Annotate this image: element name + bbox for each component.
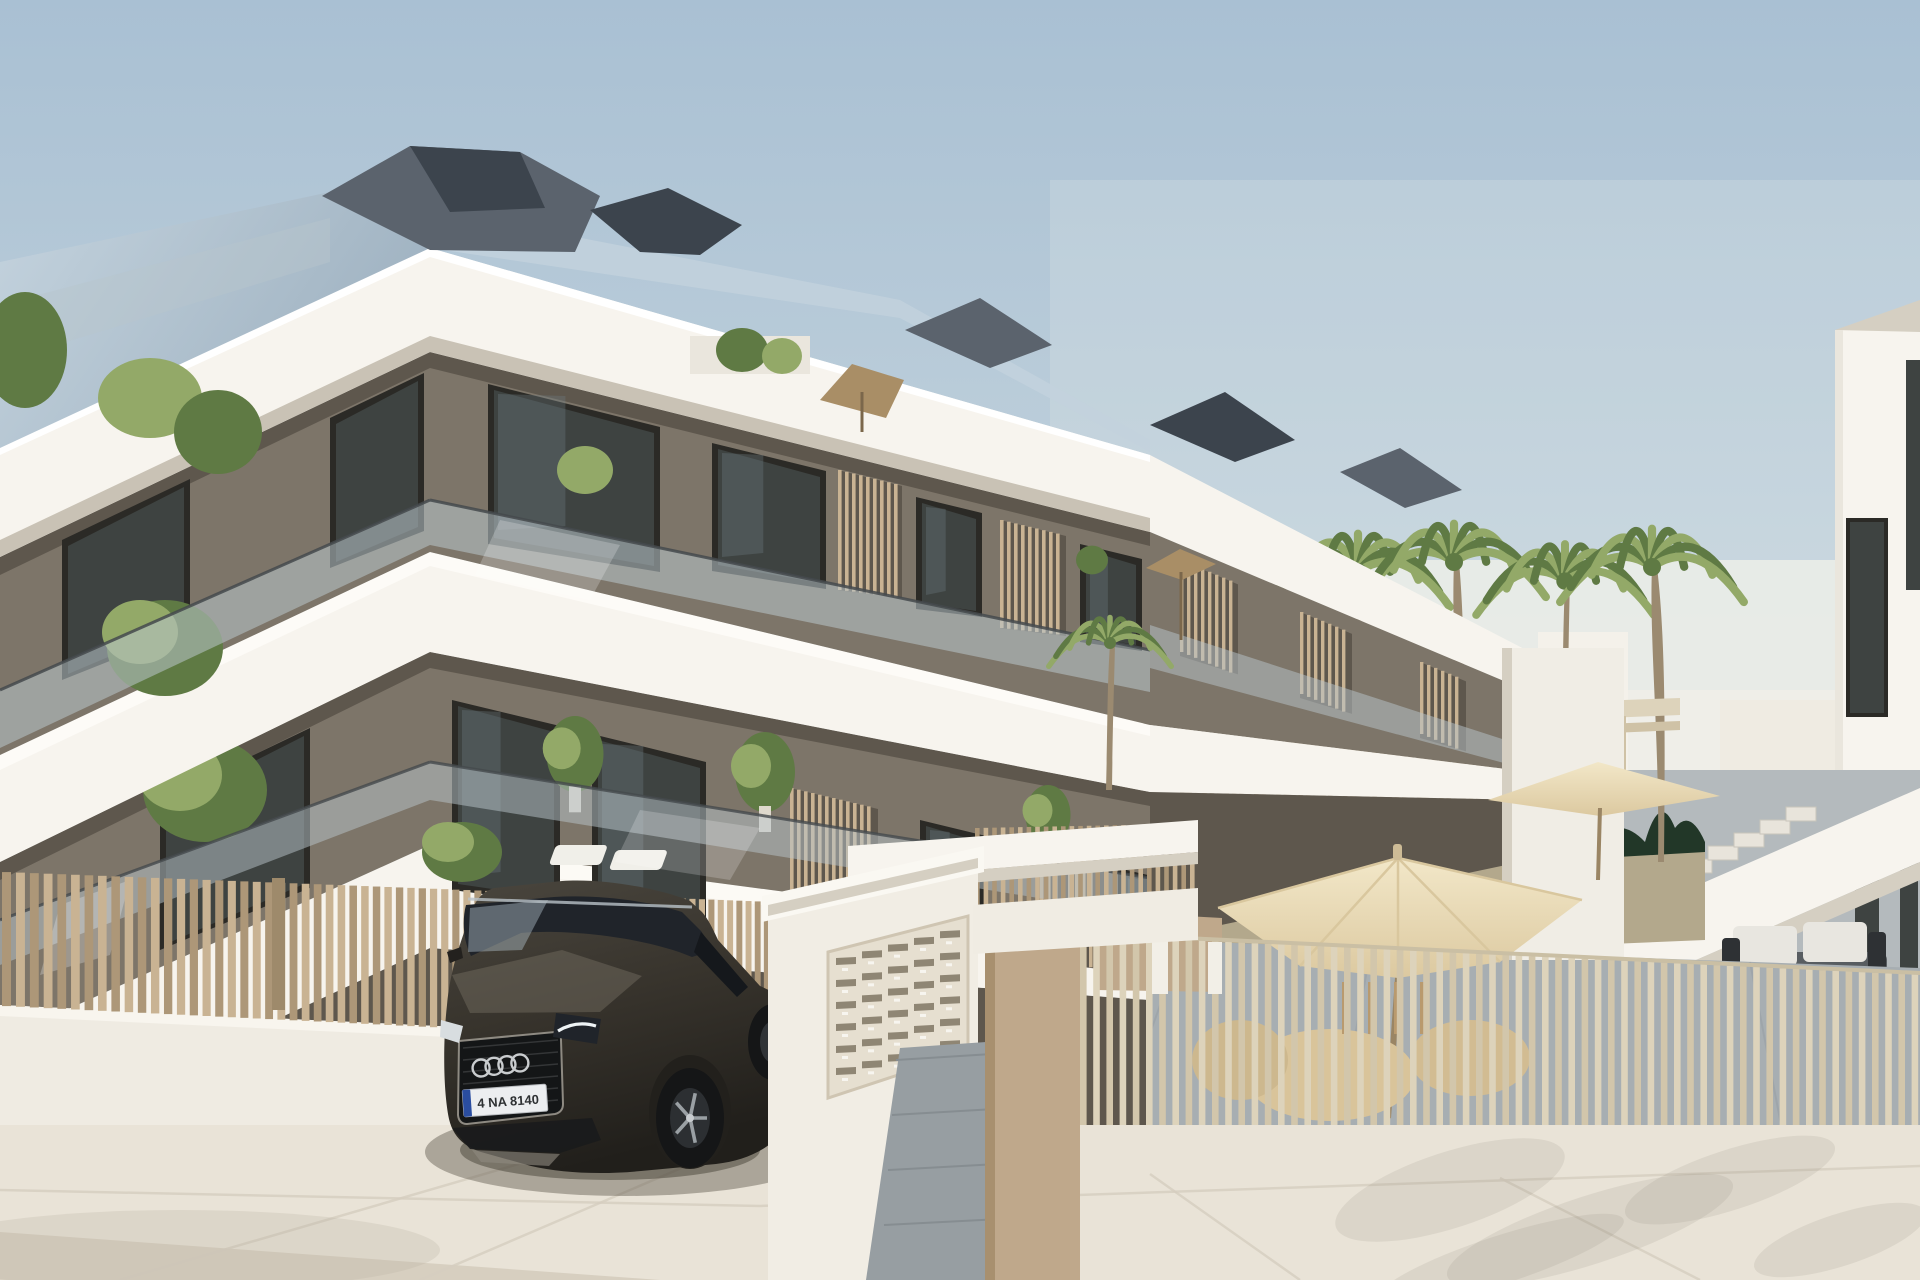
right-building-window	[1906, 360, 1920, 590]
mailbox-knob	[868, 1005, 874, 1008]
right-building-window	[1848, 520, 1886, 715]
courtyard-fence-slat	[1186, 940, 1193, 1154]
mailbox-slot	[836, 1023, 856, 1031]
courtyard-fence-slat	[1106, 936, 1113, 1152]
mailbox-slot	[862, 972, 882, 980]
courtyard-fence-slat	[1133, 938, 1140, 1153]
palm-crown-core	[1445, 553, 1463, 571]
street-fence-slat	[349, 886, 357, 1024]
roof-tree	[762, 338, 802, 374]
balcony-tree-light	[543, 727, 581, 769]
mailbox-slot	[888, 1032, 908, 1040]
street-fence-slat	[407, 888, 414, 1026]
window-reflection	[498, 394, 565, 530]
street-fence-slat	[396, 887, 403, 1025]
mailbox-slot	[914, 937, 934, 945]
street-fence-slat	[190, 879, 198, 1015]
balcony-tree-light	[731, 744, 771, 788]
street-fence-slat	[151, 878, 159, 1014]
balcony-plant	[557, 446, 613, 494]
mailbox-knob	[894, 977, 900, 980]
stair-step	[1708, 846, 1738, 860]
mailbox-knob	[920, 1036, 926, 1039]
mailbox-knob	[894, 955, 900, 958]
mailbox-knob	[946, 963, 952, 966]
street-fence-slat	[215, 880, 223, 1016]
courtyard-fence-slat	[1331, 947, 1338, 1156]
slat-screen-slat	[887, 482, 891, 596]
roof-palm-plant	[174, 390, 262, 474]
mailbox-knob	[868, 1071, 874, 1074]
mailbox-slot	[940, 996, 960, 1004]
mailbox-slot	[914, 981, 934, 989]
fence-corner-post	[272, 878, 285, 1010]
umbrella-finial	[1393, 844, 1402, 860]
courtyard-fence-slat	[1252, 943, 1259, 1154]
street-fence-slat	[16, 873, 25, 1007]
mailbox-knob	[894, 1021, 900, 1024]
mailbox-knob	[842, 1034, 848, 1037]
street-fence-slat	[111, 876, 120, 1011]
mailbox-slot	[862, 950, 882, 958]
courtyard-fence-slat	[1172, 939, 1179, 1153]
exterior-render: 4 NA 8140	[0, 0, 1920, 1280]
slat-screen-slat	[1000, 520, 1004, 628]
balcony-lounger	[549, 845, 608, 865]
slat-screen-slat	[1028, 527, 1032, 631]
courtyard-fence-slat	[1318, 946, 1325, 1155]
slat-screen-slat	[894, 484, 898, 597]
mailbox-slot	[836, 1067, 856, 1075]
slat-screen-slat	[852, 474, 856, 592]
license-plate: 4 NA 8140	[462, 1084, 548, 1117]
mailbox-knob	[868, 983, 874, 986]
street-fence-slat	[2, 872, 11, 1006]
slat-screen-slat	[845, 472, 849, 591]
courtyard-fence-slat	[1344, 948, 1351, 1157]
street-fence-slat	[71, 875, 80, 1010]
courtyard-fence-slat	[1291, 945, 1298, 1155]
street-fence-slat	[203, 880, 211, 1016]
courtyard-fence-slat	[1120, 937, 1127, 1153]
street-fence-slat	[326, 885, 334, 1022]
beige-pillar-shade	[985, 940, 995, 1280]
mailbox-slot	[888, 966, 908, 974]
mailbox-slot	[940, 952, 960, 960]
street-fence-slat	[338, 885, 346, 1023]
mailbox-knob	[842, 968, 848, 971]
mailbox-knob	[842, 1012, 848, 1015]
beige-pillar	[985, 932, 1080, 1280]
mailbox-knob	[946, 1029, 952, 1032]
courtyard-fence-slat	[1093, 936, 1100, 1153]
street-fence-slat	[253, 882, 261, 1019]
slat-screen-slat	[1021, 525, 1025, 630]
street-fence-slat	[85, 875, 94, 1010]
street-fence-slat	[265, 882, 273, 1019]
street-fence-slat	[302, 884, 310, 1021]
mailbox-slot	[862, 1060, 882, 1068]
palm-crown-core	[1643, 558, 1661, 576]
mailbox-knob	[868, 1049, 874, 1052]
mailbox-knob	[842, 990, 848, 993]
street-fence-slat	[177, 879, 185, 1015]
slat-screen-slat	[1007, 522, 1011, 629]
mailbox-slot	[940, 1018, 960, 1026]
slat-screen-slat	[880, 481, 884, 596]
mailbox-knob	[868, 1027, 874, 1030]
window-reflection	[722, 453, 763, 557]
mailbox-slot	[888, 988, 908, 996]
slat-screen-slat	[866, 477, 870, 593]
mailbox-slot	[914, 1025, 934, 1033]
street-fence-slat	[138, 877, 146, 1012]
mailbox-slot	[836, 1045, 856, 1053]
mailbox-slot	[862, 994, 882, 1002]
sofa-cushion	[1733, 926, 1797, 966]
slat-screen-slat	[873, 479, 877, 595]
courtyard-fence-slat	[1199, 941, 1206, 1154]
mailbox-knob	[946, 985, 952, 988]
mailbox-knob	[842, 1056, 848, 1059]
mailbox-knob	[920, 1014, 926, 1017]
balcony-tree-light	[1023, 794, 1053, 827]
courtyard-fence-slat	[1265, 944, 1272, 1155]
street-fence-slat	[361, 886, 368, 1024]
stair-step	[1760, 820, 1790, 834]
window-reflection	[926, 507, 946, 595]
courtyard-fence-slat	[1304, 946, 1311, 1156]
mailbox-knob	[920, 948, 926, 951]
mailbox-knob	[868, 961, 874, 964]
mailbox-slot	[836, 957, 856, 965]
mailbox-knob	[946, 941, 952, 944]
mailbox-slot	[862, 1016, 882, 1024]
mailbox-slot	[888, 1010, 908, 1018]
roof-tree	[716, 328, 768, 372]
street-fence-slat	[98, 876, 107, 1011]
mailbox-slot	[888, 944, 908, 952]
stair-step	[1734, 833, 1764, 847]
courtyard-fence-slat	[1238, 943, 1245, 1155]
mailbox-knob	[894, 999, 900, 1002]
mailbox-slot	[836, 979, 856, 987]
street-fence-slat	[290, 883, 298, 1020]
mailbox-knob	[946, 1007, 952, 1010]
mailbox-slot	[862, 1038, 882, 1046]
slat-screen-slat	[838, 470, 842, 590]
mailbox-knob	[842, 1078, 848, 1081]
street-fence-slat	[240, 881, 248, 1017]
street-fence-slat	[164, 878, 172, 1014]
mailbox-knob	[920, 992, 926, 995]
street-fence-slat	[373, 887, 380, 1025]
sofa-cushion	[1803, 922, 1867, 962]
wheel-hub	[686, 1114, 694, 1122]
slat-screen-slat	[859, 475, 863, 592]
mailbox-knob	[920, 970, 926, 973]
street-fence-slat	[125, 877, 133, 1012]
slat-screen-slat	[1035, 528, 1039, 632]
palm-crown-core	[1104, 637, 1116, 649]
street-fence-slat	[384, 887, 391, 1025]
render-canvas: 4 NA 8140	[0, 0, 1920, 1280]
bush-behind-fence-light	[422, 822, 474, 862]
slat-screen-slat	[1056, 534, 1060, 635]
street-fence-slat	[30, 873, 39, 1007]
mailbox-slot	[914, 1003, 934, 1011]
fence-gate-post	[1152, 938, 1168, 994]
street-fence-slat	[419, 888, 426, 1026]
mailbox-slot	[836, 1001, 856, 1009]
stair-step	[1786, 807, 1816, 821]
slat-screen-slat	[1042, 530, 1046, 633]
street-fence-slat	[44, 874, 53, 1008]
street-fence-slat	[430, 889, 437, 1027]
courtyard-fence-slat	[1225, 942, 1232, 1154]
mailbox-slot	[940, 974, 960, 982]
street-fence-slat	[57, 874, 66, 1009]
street-fence-slat	[228, 881, 236, 1017]
street-fence-slat	[314, 884, 322, 1021]
courtyard-fence-slat	[1146, 938, 1153, 1153]
slat-screen-slat	[1049, 532, 1053, 634]
slat-screen-slat	[1014, 523, 1018, 629]
fence-gate-post	[1208, 942, 1222, 994]
mailbox-slot	[914, 959, 934, 967]
mailbox-slot	[940, 930, 960, 938]
courtyard-fence-slat	[1080, 935, 1087, 1152]
balustrade-planter-plant	[1076, 546, 1108, 575]
mailbox-knob	[894, 1043, 900, 1046]
courtyard-fence-slat	[1278, 944, 1285, 1155]
umbrella-pole	[1598, 808, 1600, 880]
